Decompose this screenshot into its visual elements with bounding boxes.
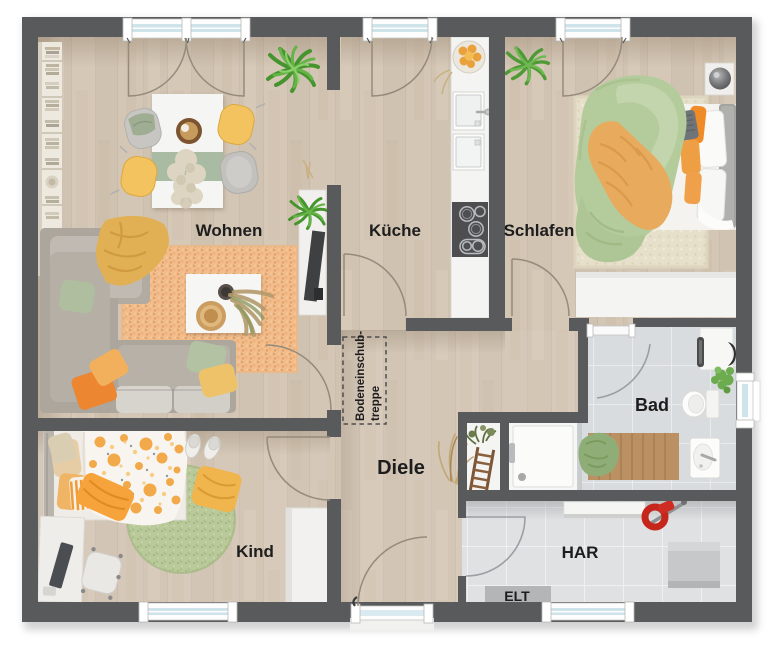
svg-text:treppe: treppe [370,386,382,421]
svg-text:HAR: HAR [562,543,599,562]
svg-text:Diele: Diele [377,457,425,479]
svg-text:Kind: Kind [236,542,274,561]
svg-text:Schlafen: Schlafen [504,221,575,240]
svg-text:Bad: Bad [635,395,669,415]
svg-text:Wohnen: Wohnen [196,221,263,240]
svg-text:Küche: Küche [369,221,421,240]
svg-text:ELT: ELT [504,588,530,604]
svg-text:Bodeneinschub-: Bodeneinschub- [355,331,367,421]
